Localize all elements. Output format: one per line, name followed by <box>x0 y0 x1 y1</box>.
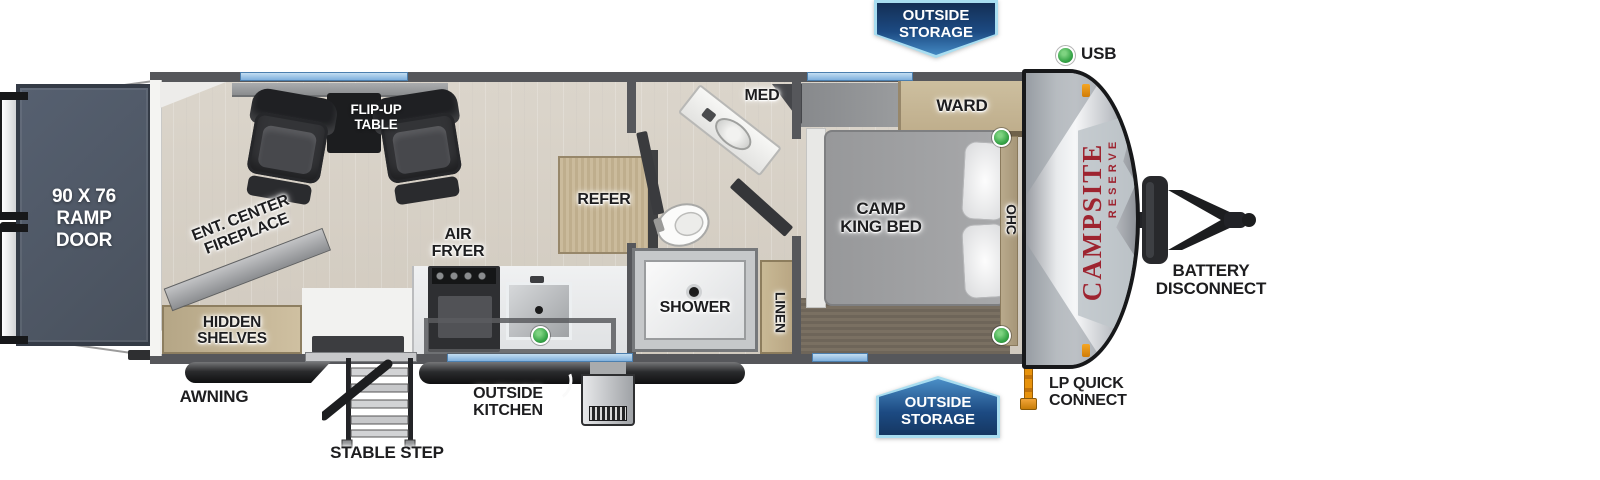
usb-dot-callout <box>1058 48 1073 63</box>
sink-drain <box>535 306 543 314</box>
lp-fitting <box>1020 398 1037 410</box>
lp-quick-connect-label: LP QUICK CONNECT <box>1049 376 1141 410</box>
bedroom-window-bottom <box>812 353 868 362</box>
usb-label: USB <box>1081 45 1131 63</box>
bedroom-window-top <box>807 72 913 81</box>
ward-label: WARD <box>918 97 1006 115</box>
ramp-door-label: 90 X 76 RAMP DOOR <box>22 186 146 252</box>
outside-storage-badge-bottom: OUTSIDE STORAGE <box>876 376 1000 438</box>
lp-pipe <box>1024 364 1033 402</box>
outside-kitchen-window <box>447 353 633 362</box>
outside-kitchen-label: OUTSIDE KITCHEN <box>452 386 564 420</box>
counter-rail <box>424 318 616 354</box>
grill-vents <box>589 406 627 421</box>
ohc-label: OHC <box>1004 194 1019 244</box>
refer-label: REFER <box>560 192 648 209</box>
hitch-assembly <box>1136 172 1256 268</box>
toilet <box>652 200 714 250</box>
ramp-hinge-bar-1 <box>0 92 28 100</box>
bed-foot-overhead <box>801 83 901 127</box>
linen-label: LINEN <box>773 280 788 344</box>
entry-step-mat <box>312 336 404 353</box>
usb-dot-bed-top <box>994 130 1009 145</box>
shower-drain <box>689 287 699 297</box>
outside-storage-badge-top: OUTSIDE STORAGE <box>874 0 998 58</box>
clearance-light-top <box>1082 84 1090 97</box>
outside-storage-bottom-label: OUTSIDE STORAGE <box>876 376 1000 438</box>
med-label: MED <box>730 88 794 105</box>
recliner-cushion <box>257 124 317 175</box>
flip-up-table-label: FLIP-UP TABLE <box>316 102 436 132</box>
camp-king-bed-label: CAMP KING BED <box>826 200 936 236</box>
vanity-faucet <box>701 107 717 122</box>
bedroom-carpet <box>798 298 1010 354</box>
brand-series: RESERVE <box>1107 123 1121 233</box>
outside-grill <box>581 374 635 426</box>
battery-disconnect-label: BATTERY DISCONNECT <box>1146 262 1276 298</box>
usb-dot-bed-bottom <box>994 328 1009 343</box>
stable-step-label: STABLE STEP <box>322 444 452 462</box>
living-window <box>240 72 408 81</box>
stable-step-ladder <box>322 356 430 448</box>
clearance-light-bottom <box>1082 344 1090 357</box>
bedroom-wall-bottom <box>792 236 801 355</box>
awning-label: AWNING <box>172 388 256 406</box>
awning-roller-left <box>185 362 335 383</box>
brand-name: CAMPSITE <box>1077 127 1107 317</box>
ramp-hinge-bar-4 <box>0 336 28 344</box>
usb-dot-kitchen <box>533 328 548 343</box>
hidden-shelves-label: HIDDEN SHELVES <box>168 315 296 348</box>
sink-faucet <box>530 276 544 283</box>
recliner-cushion <box>392 125 452 175</box>
air-fryer-label: AIR FRYER <box>413 227 503 261</box>
bed-platform-edge <box>806 128 826 308</box>
bath-wall-left-top <box>627 81 636 133</box>
floorplan-diagram: 90 X 76 RAMP DOOR FLIP-UP TABLE ENT. CEN… <box>0 0 1600 480</box>
rear-opening <box>150 80 162 356</box>
shower-label: SHOWER <box>645 300 745 317</box>
outside-storage-top-label: OUTSIDE STORAGE <box>874 0 998 58</box>
stove-grate <box>432 268 496 284</box>
